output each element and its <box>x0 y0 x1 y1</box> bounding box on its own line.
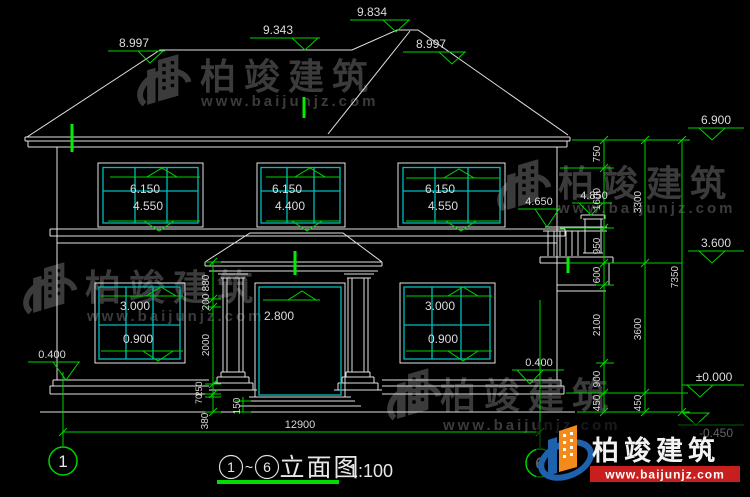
dim-900: 900 <box>592 370 603 387</box>
brand-url-text: www.baijunjz.com <box>604 468 725 482</box>
dim-450a: 450 <box>592 394 603 411</box>
watermark-url-text: www.baijunjz.com <box>200 93 378 110</box>
dim-380: 380 <box>200 412 211 429</box>
level-ridge-right: 9.834 <box>357 5 387 19</box>
w2l-sill: 4.550 <box>133 199 163 213</box>
brand-logo-text: 柏竣建筑 <box>592 435 720 466</box>
dim-200: 200 <box>201 293 212 310</box>
title-underline <box>217 480 339 484</box>
dim-450b: 450 <box>633 394 644 411</box>
dim-2100: 2100 <box>592 313 603 336</box>
dim-2000: 2000 <box>201 333 212 356</box>
w2m-top: 6.150 <box>272 182 302 196</box>
watermark-logo-icon <box>140 54 188 105</box>
entry-door <box>259 287 341 395</box>
level-door-top: 2.800 <box>264 309 294 323</box>
level-roof-left: 8.997 <box>119 36 149 50</box>
dim-600: 600 <box>592 266 603 283</box>
w1r-sill: 0.900 <box>428 332 458 346</box>
brand-logo: 柏竣建筑 www.baijunjz.com <box>536 422 750 497</box>
level-floor2: 3.600 <box>701 236 731 250</box>
grid-label-1: 1 <box>58 452 67 471</box>
dim-3300: 3300 <box>633 190 644 213</box>
cad-elevation-screenshot: 柏竣建筑 www.baijunjz.com 柏竣建筑 www.baijunjz.… <box>0 0 750 497</box>
title-tilde: ~ <box>245 459 253 475</box>
watermark-top-center: 柏竣建筑 www.baijunjz.com <box>140 54 378 110</box>
level-balcony-rail: 4.650 <box>525 196 553 208</box>
level-ridge-left: 9.343 <box>263 23 293 37</box>
title-scale: 1:100 <box>348 461 393 481</box>
dim-750: 750 <box>592 145 603 162</box>
dim-150: 150 <box>232 397 243 414</box>
window-f1-right <box>404 287 490 359</box>
w1l-top: 3.000 <box>120 299 150 313</box>
drawing-title: 1 ~ 6 立面图 1:100 <box>217 454 393 484</box>
level-plinth-left: 0.400 <box>38 349 66 361</box>
dim-total-width: 12900 <box>285 419 316 431</box>
watermark-left-middle: 柏竣建筑 www.baijunjz.com <box>26 262 264 325</box>
w1l-sill: 0.900 <box>123 332 153 346</box>
dim-3600: 3600 <box>633 317 644 340</box>
level-plinth-right: 0.400 <box>525 357 553 369</box>
dim-7350: 7350 <box>670 265 681 288</box>
w2m-sill: 4.400 <box>275 199 305 213</box>
w2l-top: 6.150 <box>130 182 160 196</box>
w2r-top: 6.150 <box>425 182 455 196</box>
dim-70: 70 <box>194 394 204 404</box>
dim-1600: 1600 <box>592 187 603 210</box>
title-axis-right: 6 <box>263 459 271 475</box>
level-roof-right: 8.997 <box>416 37 446 51</box>
level-ground: ±0.000 <box>696 370 733 384</box>
elevation-drawing-svg: 柏竣建筑 www.baijunjz.com 柏竣建筑 www.baijunjz.… <box>0 0 750 497</box>
watermark-url-text: www.baijunjz.com <box>86 308 264 325</box>
dim-950: 950 <box>592 237 603 254</box>
level-eave: 6.900 <box>701 113 731 127</box>
w2r-sill: 4.550 <box>428 199 458 213</box>
watermark-right-middle: 柏竣建筑 www.baijunjz.com <box>500 159 735 217</box>
title-axis-left: 1 <box>227 459 235 475</box>
watermark-brand-text: 柏竣建筑 <box>200 56 376 97</box>
dim-880: 880 <box>201 274 212 291</box>
w1r-top: 3.000 <box>425 299 455 313</box>
watermark-logo-icon <box>26 262 74 313</box>
